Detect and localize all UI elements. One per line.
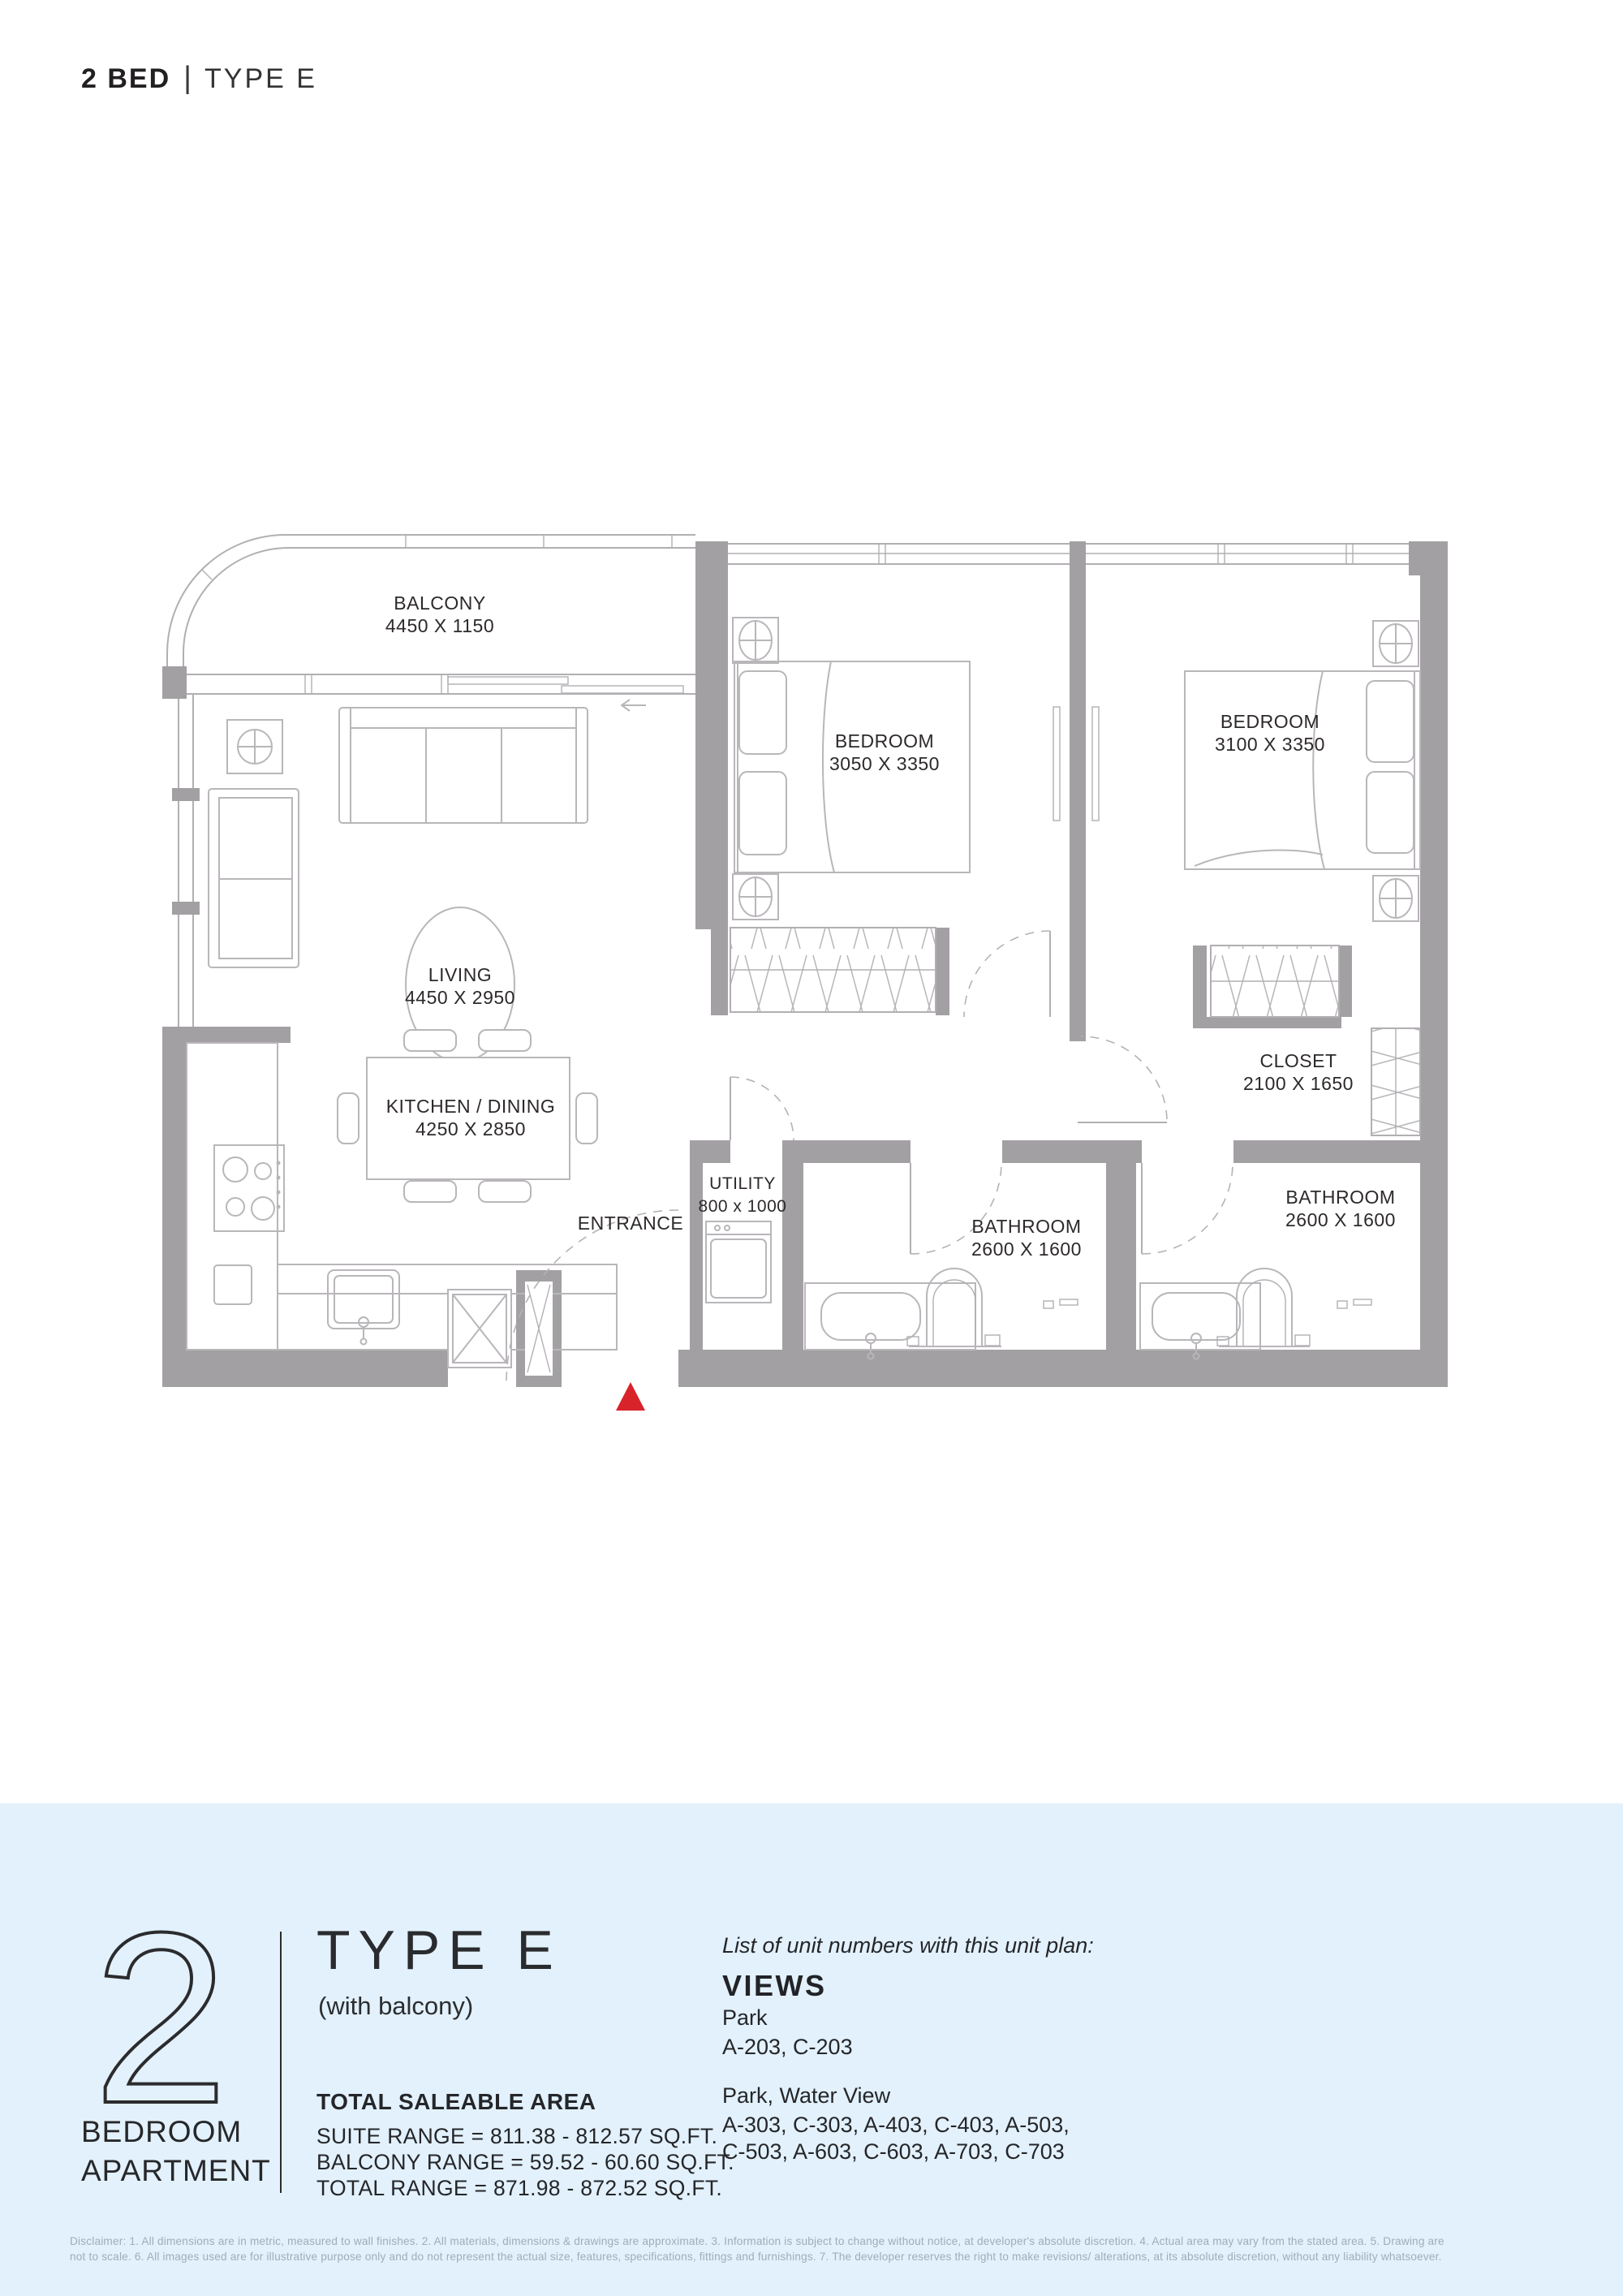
header-type: TYPE E [204,63,317,95]
utility-dims: 800 x 1000 [699,1197,787,1216]
type-title: TYPE E [316,1919,562,1982]
kitchen-sink-icon [328,1270,399,1345]
utility-door [730,1077,794,1140]
living-label: LIVING [428,964,492,985]
bathroom2-label: BATHROOM [1285,1187,1395,1208]
caption-bedroom: BEDROOM [81,2115,243,2149]
bedroom1-door [964,931,1050,1017]
washer-box-icon [448,1290,511,1368]
type-subtitle: (with balcony) [318,1992,473,2021]
floor-plan-drawing: BALCONY 4450 X 1150 LIVING 4450 X 2950 K… [162,530,1453,1415]
area-lines: SUITE RANGE = 811.38 - 812.57 SQ.FT. BAL… [316,2123,734,2201]
bathroom1-dims: 2600 X 1600 [971,1238,1082,1260]
left-window-wall [179,694,193,1027]
wardrobe-1 [730,928,936,1012]
wardrobe-2 [1211,946,1339,1017]
kitchen-label: KITCHEN / DINING [386,1096,556,1117]
balcony-label: BALCONY [394,592,485,614]
disclaimer-line1: Disclaimer: 1. All dimensions are in met… [70,2234,1579,2250]
bedroom2-dims: 3100 X 3350 [1215,734,1325,755]
numeral-2: 2 [93,1881,229,2141]
view-group-1-name: Park [722,2005,768,2031]
entrance-label: ENTRANCE [578,1213,684,1234]
utility-label: UTILITY [709,1174,776,1193]
bathroom1-fixtures [805,1269,1078,1359]
bathroom2-door [1142,1163,1233,1254]
chaise-sofa-icon [209,789,299,967]
bedroom2-label: BEDROOM [1220,711,1319,732]
suite-range: SUITE RANGE = 811.38 - 812.57 SQ.FT. [316,2123,734,2149]
nightstand-lamp-icon [1373,876,1419,921]
area-heading: TOTAL SALEABLE AREA [316,2089,596,2115]
door-panel [1053,707,1060,821]
stove-icon [214,1145,284,1231]
bedroom1-dims: 3050 X 3350 [829,753,940,774]
header-bed-count: 2 BED [81,63,170,95]
caption-apartment: APARTMENT [81,2154,243,2188]
north-arrow-icon [622,700,646,711]
view-group-1-units: A-203, C-203 [722,2034,853,2061]
sofa-icon [339,708,588,823]
floor-plan: BALCONY 4450 X 1150 LIVING 4450 X 2950 K… [162,530,1453,1415]
washing-machine-icon [706,1221,771,1303]
divider-line [280,1932,282,2193]
view-group-2-name: Park, Water View [722,2083,890,2109]
units-intro: List of unit numbers with this unit plan… [722,1933,1094,1958]
info-band: 2 BEDROOM APARTMENT TYPE E (with balcony… [0,1803,1623,2296]
nightstand-lamp-icon [733,874,778,920]
balcony-window-band [167,674,695,694]
side-table-lamp-icon [227,720,282,773]
closet-dims: 2100 X 1650 [1243,1073,1354,1094]
balcony-dims: 4450 X 1150 [385,615,494,636]
entrance-marker [616,1382,645,1411]
nightstand-lamp-icon [1373,621,1419,666]
kitchen-dims: 4250 X 2850 [415,1118,526,1139]
living-dims: 4450 X 2950 [405,987,515,1008]
page-header: 2 BED | TYPE E [81,63,317,95]
closet-label: CLOSET [1259,1050,1337,1071]
view-group-2-units-line2: C-503, A-603, C-603, A-703, C-703 [722,2139,1070,2165]
bathroom1-label: BATHROOM [971,1216,1081,1237]
bed-2 [1185,671,1420,869]
disclaimer: Disclaimer: 1. All dimensions are in met… [70,2234,1579,2264]
bathroom2-fixtures [1140,1269,1371,1359]
bathroom2-dims: 2600 X 1600 [1285,1209,1396,1230]
closet-wardrobe [1371,1028,1420,1135]
view-group-2-units-line1: A-303, C-303, A-403, C-403, A-503, [722,2112,1070,2139]
bedroom1-label: BEDROOM [835,730,934,752]
door-panel [1092,707,1099,821]
header-separator: | [183,62,192,93]
total-range: TOTAL RANGE = 871.98 - 872.52 SQ.FT. [316,2175,734,2201]
door-jamb-notch [1060,1017,1070,1038]
closet-vestibule-door [1078,1036,1167,1122]
disclaimer-line2: not to scale. 6. All images used are for… [70,2250,1579,2265]
views-heading: VIEWS [722,1969,827,2003]
bedroom-count-numeral: 2 [63,1881,258,2141]
view-group-2-units: A-303, C-303, A-403, C-403, A-503, C-503… [722,2112,1070,2165]
balcony-range: BALCONY RANGE = 59.52 - 60.60 SQ.FT. [316,2149,734,2175]
nightstand-lamp-icon [733,618,778,663]
